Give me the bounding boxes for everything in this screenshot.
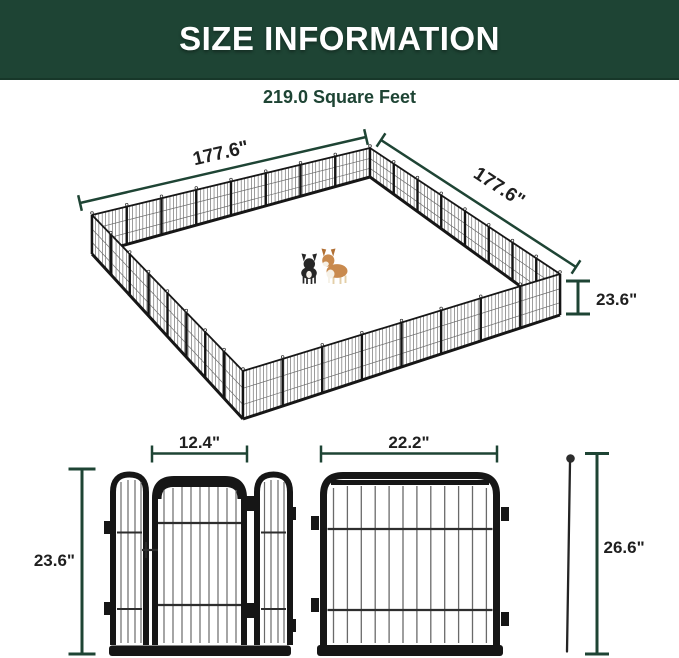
door-width-dimension: 12.4" <box>152 433 247 463</box>
stake-drawing <box>566 454 575 651</box>
large-panel-drawing <box>311 476 509 657</box>
connector-tab <box>289 507 296 520</box>
stake-height-dimension: 26.6" <box>585 454 645 655</box>
stake-shaft <box>567 463 570 652</box>
connector-tab <box>311 516 319 530</box>
area-subtitle: 219.0 Square Feet <box>263 87 416 108</box>
door-height-dimension: 23.6" <box>34 469 96 654</box>
pen-height-dimension: 23.6" <box>566 281 637 314</box>
door-width-label: 12.4" <box>179 433 220 452</box>
panel-width-label: 22.2" <box>388 433 429 452</box>
header-banner: SIZE INFORMATION <box>0 0 679 80</box>
dimension-tick <box>364 129 368 145</box>
stake-height-label: 26.6" <box>604 538 645 557</box>
connector-tab <box>501 612 509 626</box>
hinge <box>243 496 254 511</box>
size-diagram: 177.6" 177.6" 23.6" <box>0 115 679 658</box>
door-assembly-drawing <box>104 475 296 657</box>
dimension-tick <box>377 133 386 146</box>
connector-tab <box>311 598 319 612</box>
connector-tab <box>289 619 296 632</box>
connector-tab <box>104 602 111 615</box>
panel-base <box>317 645 503 656</box>
door-panel <box>142 479 254 645</box>
page-title: SIZE INFORMATION <box>179 20 500 58</box>
dimension-tick <box>78 195 82 211</box>
door-side-panel-right <box>257 475 296 646</box>
subtitle-row: 219.0 Square Feet <box>0 80 679 115</box>
panel-width-dimension: 22.2" <box>321 433 497 463</box>
door-side-panel-left <box>104 475 146 646</box>
connector-tab <box>104 521 111 534</box>
hinge <box>243 603 254 618</box>
connector-tab <box>501 507 509 521</box>
dimension-tick <box>572 260 581 273</box>
pen-height-label: 23.6" <box>596 290 637 309</box>
door-height-label: 23.6" <box>34 551 75 570</box>
door-assembly-base <box>109 646 291 657</box>
